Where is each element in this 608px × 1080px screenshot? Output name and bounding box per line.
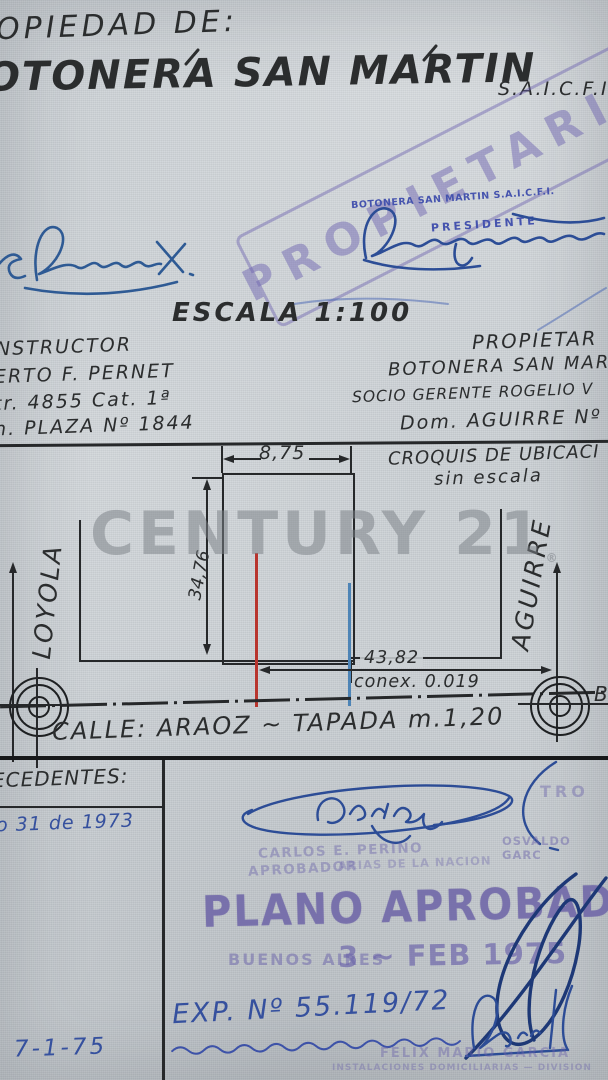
- dim-distance-arrow-right: [541, 666, 552, 674]
- block-bottom-left: [79, 660, 353, 662]
- garcia-stamp-dept: INSTALACIONES DOMICILIARIAS — DIVISION: [332, 1063, 592, 1073]
- street-centerline: [0, 691, 608, 708]
- owner-title: PROPIETAR: [472, 329, 598, 354]
- osvaldo-stamp: OSVALDO GARC: [502, 834, 608, 862]
- water-service-line: [255, 553, 258, 707]
- scanned-plan-document: OPIEDAD DE: OTONERA SAN MARTIN S.A.I.C.F…: [0, 0, 608, 1080]
- scale-heading: ESCALA 1:100: [172, 300, 412, 327]
- manhole-left-inner: [28, 696, 50, 718]
- dim-width-line-b: [309, 458, 342, 460]
- owner-name: BOTONERA SAN MARTIN: [388, 353, 608, 381]
- dim-width-arrow-left: [223, 455, 234, 463]
- dim-distance-arrow-left: [259, 666, 270, 674]
- dim-depth-arrow-up: [203, 479, 211, 490]
- manhole-left-crosshair-v: [36, 668, 38, 768]
- dim-distance-line: [263, 669, 545, 671]
- dim-width-arrow-right: [339, 455, 350, 463]
- block-left-edge: [79, 520, 81, 662]
- registered-mark: ®: [546, 551, 562, 565]
- antecedentes-underline: [0, 806, 163, 808]
- builder-name: ERTO F. PERNET: [0, 362, 175, 388]
- sketch-caption-2: sin escala: [434, 467, 544, 490]
- manhole-left-crosshair-h: [0, 704, 84, 706]
- century21-watermark: CENTURY 21®: [90, 499, 562, 569]
- watermark-text: CENTURY 21: [90, 499, 546, 569]
- dim-depth-arrow-down: [203, 644, 211, 655]
- antecedentes-heading: ECEDENTES:: [0, 766, 129, 792]
- antecedentes-entry: o 31 de 1973: [0, 812, 134, 837]
- dim-distance-label: 43,82: [360, 649, 423, 667]
- builder-title: NSTRUCTOR: [0, 336, 132, 361]
- loyola-axis-arrow: [9, 562, 17, 573]
- pernet-signature: [0, 212, 220, 307]
- garcia-stamp-name: FELIX MARIO GARCIA: [380, 1046, 570, 1061]
- owner-manager: SOCIO GERENTE ROGELIO V: [352, 381, 594, 406]
- dim-width-tick-right: [350, 446, 352, 473]
- footer-table-divider: [162, 760, 165, 1080]
- street-bottom-label: CALLE: ARAOZ ~ TAPADA m.1,20: [52, 704, 505, 745]
- dim-width-label: 8,75: [259, 444, 305, 464]
- sketch-caption: CROQUIS DE UBICACI: [388, 443, 600, 469]
- connection-service-line: [348, 583, 351, 706]
- date-note: 7-1-75: [14, 1034, 108, 1061]
- manhole-right-inner: [549, 695, 571, 717]
- rogelio-signature: [338, 176, 608, 284]
- quote-ticks-ink: [0, 38, 460, 68]
- dim-width-line-a: [231, 458, 261, 460]
- expediente-number: EXP. Nº 55.119/72: [171, 987, 451, 1030]
- loyola-text: LOYOLA: [27, 542, 68, 661]
- loyola-axis: [12, 566, 14, 762]
- builder-registration: tr. 4855 Cat. 1ª: [0, 389, 172, 415]
- builder-address: n. PLAZA Nº 1844: [0, 414, 195, 441]
- street-name-loyola: LOYOLA: [28, 534, 68, 668]
- corner-label: B-: [594, 684, 608, 705]
- connection-label: conex. 0.019: [354, 673, 480, 691]
- owner-address: Dom. AGUIRRE Nº: [400, 407, 602, 434]
